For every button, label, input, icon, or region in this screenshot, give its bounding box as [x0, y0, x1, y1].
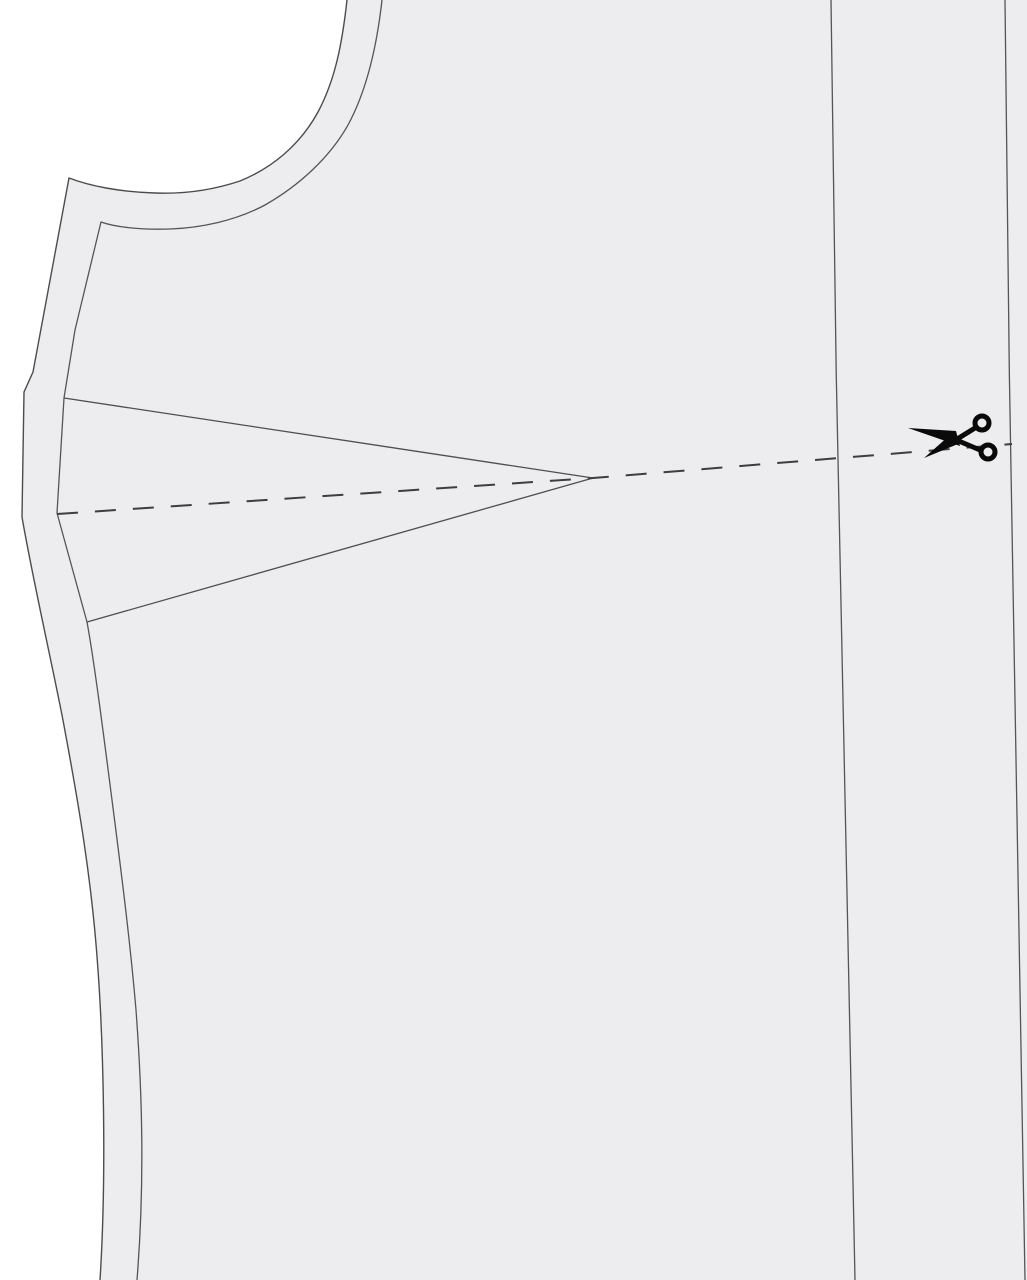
scissors-pivot — [954, 438, 959, 443]
sewing-pattern-diagram — [0, 0, 1027, 1280]
pattern-diagram-canvas — [0, 0, 1027, 1280]
